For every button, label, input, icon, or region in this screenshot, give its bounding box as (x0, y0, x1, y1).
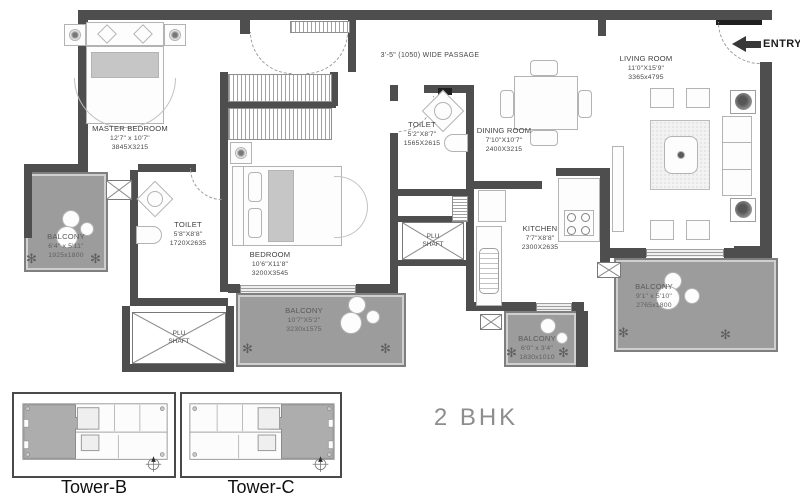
room-name: MASTER BEDROOM (75, 124, 185, 134)
room-label-balcony-kitchen: BALCONY 6'0" x 3'4" 1830x1010 (504, 334, 570, 363)
room-name: BALCONY (26, 232, 106, 242)
dining-chair (500, 90, 514, 118)
plu-shaft-mid-label: PLU SHAFT (416, 233, 450, 249)
room-size-imperial: 10'7"X5'2" (262, 316, 346, 325)
room-size-imperial: 7'10"X10'7" (474, 136, 534, 145)
room-size-imperial: 6'4" x 5'11" (26, 242, 106, 251)
room-size-metric: 1720X2635 (150, 239, 226, 248)
room-name: BEDROOM (218, 250, 322, 260)
room-name: BALCONY (504, 334, 570, 344)
plant-icon: ✻ (380, 342, 391, 355)
tv-unit (612, 146, 624, 232)
dining-chair (578, 90, 592, 118)
wall (390, 133, 398, 292)
wall (226, 306, 234, 372)
cross-lines-icon (481, 315, 501, 329)
room-label-kitchen: KITCHEN 7'7"X8'8" 2300X2635 (500, 224, 580, 253)
dining-chair (530, 130, 558, 146)
plant-icon (735, 93, 752, 110)
duct-box (597, 262, 621, 278)
pillow (248, 208, 262, 238)
room-name: TOILET (150, 220, 226, 230)
wall (390, 85, 398, 101)
table-lamp (235, 147, 247, 159)
wall (78, 10, 772, 20)
unit-type-label: 2 BHK (411, 404, 541, 432)
cross-lines-icon (107, 181, 131, 199)
wall (24, 164, 32, 238)
washbasin (147, 191, 163, 207)
table-lamp (169, 29, 181, 41)
wall (28, 164, 88, 172)
duct-box (480, 314, 502, 330)
refrigerator (478, 190, 506, 222)
room-name: TOILET (398, 120, 446, 130)
window-living-balcony (646, 249, 724, 257)
wall (466, 181, 542, 189)
room-size-imperial: 5'8"X8'8" (150, 230, 226, 239)
dining-table (514, 76, 578, 130)
room-size-metric: 3200X3545 (218, 269, 322, 278)
passage-label: 3'-5" (1050) WIDE PASSAGE (330, 52, 530, 59)
room-label-common-toilet: TOILET 5'2"X8'7" 1565X2615 (398, 120, 446, 149)
room-size-metric: 3845X3215 (75, 143, 185, 152)
room-name: LIVING ROOM (596, 54, 696, 64)
plant-icon (735, 201, 752, 218)
room-size-imperial: 5'2"X8'7" (398, 130, 446, 139)
bed-blanket (91, 52, 159, 78)
entry-arrow-tail (746, 41, 761, 48)
tower-c-label: Tower-C (180, 477, 342, 498)
room-size-metric: 1565X2615 (398, 139, 446, 148)
room-size-metric: 3230x1575 (262, 325, 346, 334)
room-size-imperial: 10'6"X11'8" (218, 260, 322, 269)
door-arc-master-bedroom (250, 32, 292, 74)
room-name: BALCONY (262, 306, 346, 316)
wall (398, 260, 468, 266)
sofa (722, 116, 752, 196)
apartment-floor-plan: PLU SHAFT PLU SHAFT (0, 0, 800, 380)
wall (576, 311, 588, 367)
burner (567, 213, 576, 222)
room-label-balcony-master: BALCONY 6'4" x 5'11" 1925x1800 (26, 232, 106, 261)
room-label-living-room: LIVING ROOM 11'0"X15'9" 3365x4795 (596, 54, 696, 83)
room-label-balcony-living: BALCONY 9'1" x 5'10" 2765x1800 (614, 282, 694, 311)
plant-icon: ✻ (618, 326, 629, 339)
room-size-metric: 2300X2635 (500, 243, 580, 252)
wc (444, 134, 468, 152)
washbasin (434, 102, 452, 120)
wall (572, 302, 584, 311)
tower-c-mini-plan (184, 396, 340, 474)
room-size-imperial: 9'1" x 5'10" (614, 292, 694, 301)
duct-box (106, 180, 132, 200)
armchair (686, 220, 710, 240)
cross-lines-icon (598, 263, 620, 277)
plu-shaft-mid: PLU SHAFT (402, 222, 464, 260)
entry-arrow-icon (732, 36, 746, 52)
duct-hatch (452, 196, 468, 222)
kitchen-sink (479, 248, 499, 294)
bed-headboard (232, 166, 244, 246)
wardrobe-master (228, 74, 332, 102)
wall (122, 364, 234, 372)
room-size-metric: 1830x1010 (504, 353, 570, 362)
table-decor (677, 151, 685, 159)
floor-plan-page: { "floor_plan": { "unit_type": "2 BHK", … (0, 0, 800, 497)
window-kitchen-balcony (536, 303, 572, 311)
burner (581, 226, 590, 235)
room-label-bedroom: BEDROOM 10'6"X11'8" 3200X3545 (218, 250, 322, 279)
plu-shaft-left-label: PLU SHAFT (162, 330, 196, 346)
entry-label: ENTRY (763, 38, 800, 50)
armchair (686, 88, 710, 108)
tower-b-mini-plan (16, 396, 174, 474)
wall (608, 248, 646, 258)
sofa-cushion-line (722, 142, 752, 143)
window-bedroom-balcony (240, 285, 356, 293)
tower-b-keyplan[interactable] (12, 392, 176, 478)
tower-b-label: Tower-B (12, 477, 176, 498)
wall (138, 164, 196, 172)
room-name: DINING ROOM (474, 126, 534, 136)
room-label-balcony-bedroom: BALCONY 10'7"X5'2" 3230x1575 (262, 306, 346, 335)
wall (556, 168, 610, 176)
room-size-imperial: 6'0" x 3'4" (504, 344, 570, 353)
room-label-master-bedroom: MASTER BEDROOM 12'7" x 10'7" 3845X3215 (75, 124, 185, 153)
wall (598, 20, 606, 36)
balcony-table (540, 318, 556, 334)
sofa-cushion-line (722, 169, 752, 170)
bed-rug (334, 176, 368, 238)
room-name: BALCONY (614, 282, 694, 292)
room-size-imperial: 11'0"X15'9" (596, 64, 696, 73)
pillow (248, 172, 262, 202)
room-size-metric: 2400X3215 (474, 145, 534, 154)
wall (392, 189, 468, 196)
wall (240, 20, 250, 34)
door-arc-master-toilet (190, 168, 222, 200)
room-size-metric: 3365x4795 (596, 73, 696, 82)
room-size-imperial: 12'7" x 10'7" (75, 134, 185, 143)
room-name: KITCHEN (500, 224, 580, 234)
armchair (650, 88, 674, 108)
burner (581, 213, 590, 222)
wall (122, 306, 130, 372)
room-label-dining-room: DINING ROOM 7'10"X10'7" 2400X3215 (474, 126, 534, 155)
armchair (650, 220, 674, 240)
dining-chair (530, 60, 558, 76)
wall (130, 298, 228, 306)
room-size-metric: 1925x1800 (26, 251, 106, 260)
room-label-master-toilet: TOILET 5'8"X8'8" 1720X2635 (150, 220, 226, 249)
wall (760, 62, 772, 246)
plant-icon: ✻ (720, 328, 731, 341)
table-lamp (69, 29, 81, 41)
wall (734, 246, 772, 258)
plu-shaft-left: PLU SHAFT (132, 312, 226, 364)
tower-c-keyplan[interactable] (180, 392, 342, 478)
plant-icon: ✻ (242, 342, 253, 355)
wall (356, 284, 398, 293)
room-size-metric: 2765x1800 (614, 301, 694, 310)
wall (228, 284, 240, 293)
room-size-imperial: 7'7"X8'8" (500, 234, 580, 243)
wardrobe-bedroom (228, 108, 332, 140)
balcony-chair (366, 310, 380, 324)
bed-blanket (268, 170, 294, 242)
